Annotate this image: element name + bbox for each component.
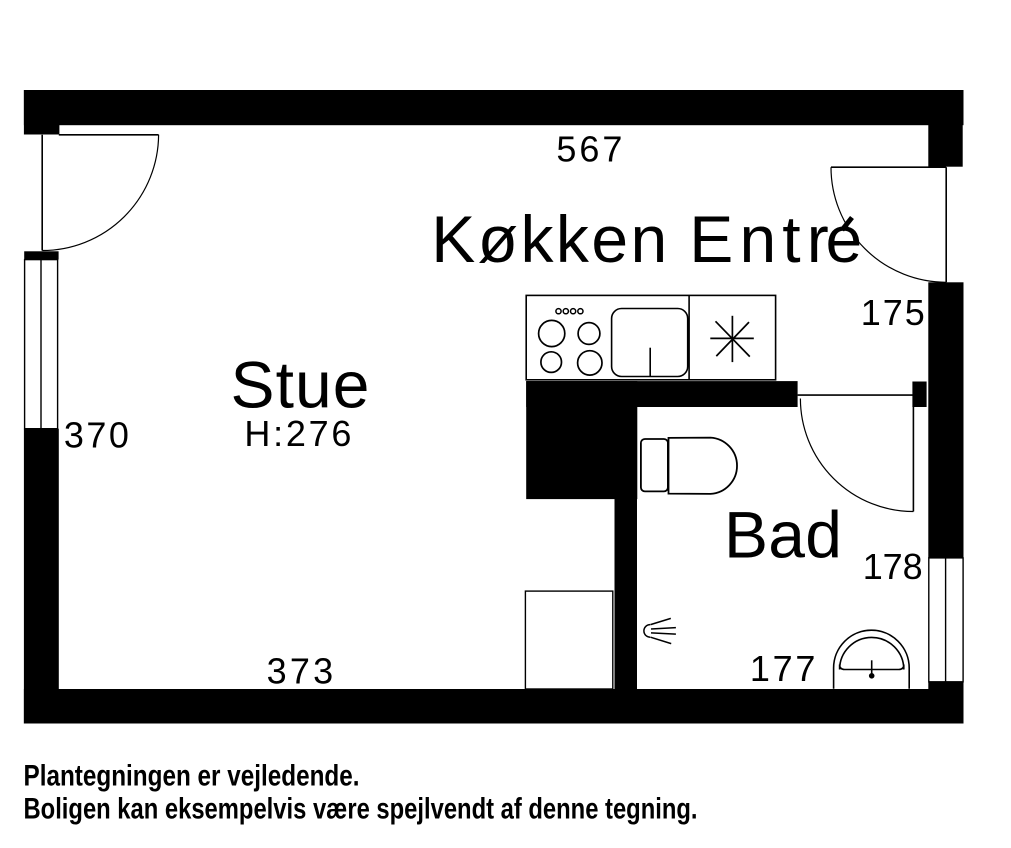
svg-text:177: 177 <box>750 648 816 689</box>
svg-text:e: e <box>826 202 863 276</box>
svg-text:Køkken: Køkken <box>431 202 667 276</box>
svg-text:Boligen kan eksempelvis være s: Boligen kan eksempelvis være spejlvendt … <box>24 792 698 825</box>
svg-text:373: 373 <box>267 651 334 692</box>
svg-text:Bad: Bad <box>724 497 842 571</box>
svg-text:Entr: Entr <box>689 202 828 276</box>
svg-text:Plantegningen er vejledende.: Plantegningen er vejledende. <box>24 760 360 793</box>
svg-text:370: 370 <box>64 414 129 455</box>
svg-text:178: 178 <box>863 546 923 587</box>
svg-text:175: 175 <box>861 292 925 333</box>
svg-text:Stue: Stue <box>231 348 370 422</box>
svg-text:567: 567 <box>556 129 622 170</box>
svg-text:H:276: H:276 <box>244 413 351 454</box>
